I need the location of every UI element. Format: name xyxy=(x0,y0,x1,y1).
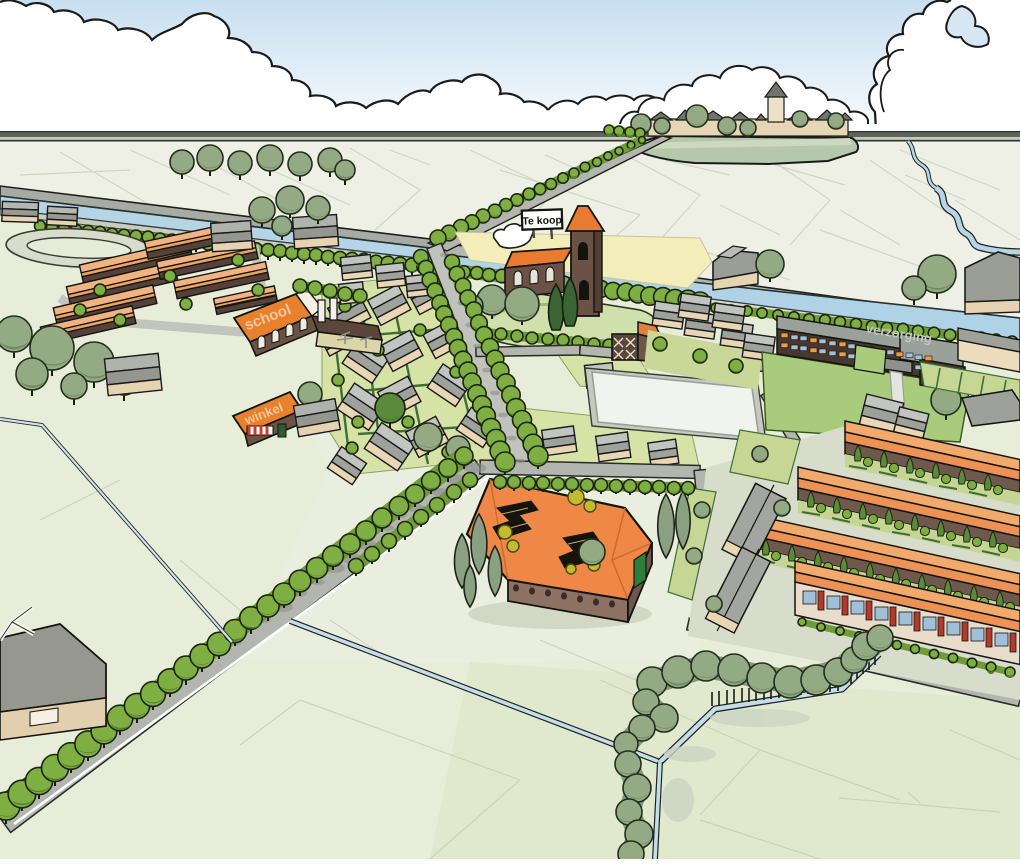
svg-text:Te koop: Te koop xyxy=(522,214,562,227)
